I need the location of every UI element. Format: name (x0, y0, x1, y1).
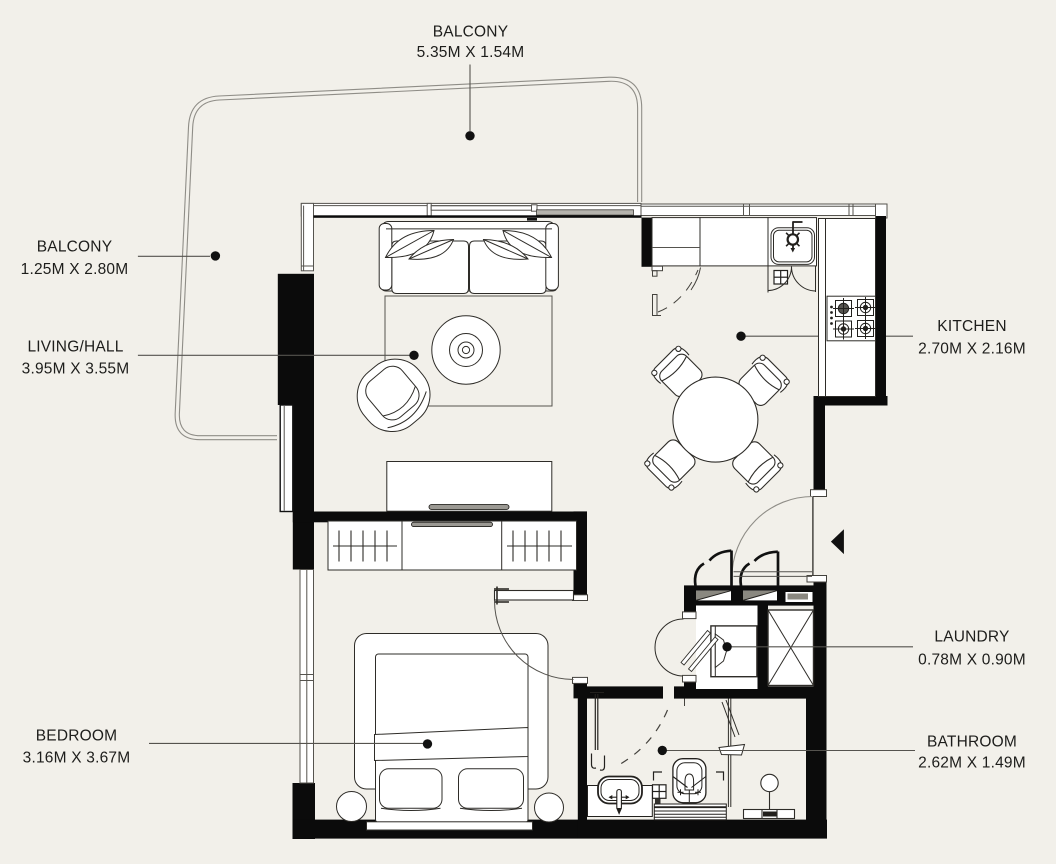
svg-text:3.95M X 3.55M: 3.95M X 3.55M (22, 360, 130, 377)
svg-text:0.78M X 0.90M: 0.78M X 0.90M (918, 652, 1026, 669)
svg-text:3.16M X 3.67M: 3.16M X 3.67M (23, 750, 131, 767)
svg-text:LAUNDRY: LAUNDRY (934, 629, 1009, 646)
svg-text:BALCONY: BALCONY (37, 238, 112, 255)
svg-text:BEDROOM: BEDROOM (36, 728, 118, 745)
svg-text:2.70M X 2.16M: 2.70M X 2.16M (918, 341, 1026, 358)
svg-text:2.62M X 1.49M: 2.62M X 1.49M (918, 755, 1026, 772)
svg-text:1.25M X 2.80M: 1.25M X 2.80M (21, 261, 129, 278)
svg-text:LIVING/HALL: LIVING/HALL (27, 339, 123, 356)
svg-text:5.35M X 1.54M: 5.35M X 1.54M (417, 44, 525, 61)
svg-text:BALCONY: BALCONY (433, 24, 508, 41)
svg-text:BATHROOM: BATHROOM (927, 734, 1017, 751)
svg-text:KITCHEN: KITCHEN (937, 318, 1006, 335)
